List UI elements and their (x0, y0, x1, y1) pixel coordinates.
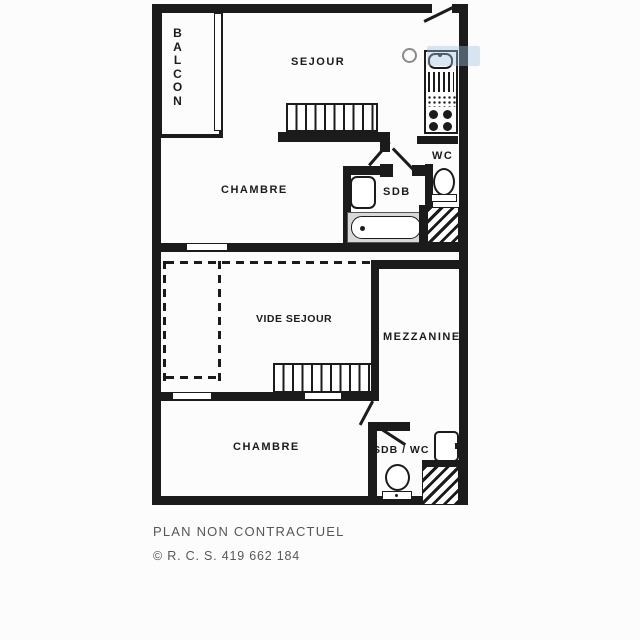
hob-burner-2 (443, 110, 452, 119)
toilet-lower-bowl (385, 464, 410, 491)
window-lower-2 (304, 392, 342, 400)
sdbwc-left-wall (368, 422, 377, 505)
room-label-chambre-upper: CHAMBRE (221, 184, 288, 196)
void-dashed-left (163, 261, 166, 381)
void-dashed-bottom (166, 376, 221, 379)
room-label-sejour: SEJOUR (291, 56, 345, 68)
mezzanine-top-wall (371, 260, 468, 269)
kitchen-drainboard (428, 72, 454, 92)
window-upper-bottom-wall (186, 243, 228, 251)
void-dashed-top (166, 261, 371, 264)
room-label-chambre-lower: CHAMBRE (233, 441, 300, 453)
room-label-balcon: BALCON (171, 27, 184, 108)
sdb-top-wall-blob (380, 164, 393, 177)
wc-divider-wall (425, 164, 433, 209)
balcony-sliding-window (214, 13, 222, 131)
duct-hatch-lower (422, 466, 459, 505)
staircase-lower (273, 363, 373, 393)
kitchen-stub-wall (417, 136, 458, 144)
wc-door-stub (412, 165, 425, 176)
room-label-sdb-wc: SDB / WC (373, 444, 429, 456)
duct-hatch-upper (427, 207, 459, 243)
outer-wall-bottom (152, 496, 468, 505)
washbasin-upper-tap (344, 189, 351, 195)
outer-wall-right (459, 4, 468, 505)
washbasin-lower-tap (455, 443, 462, 449)
room-label-vide-sejour: VIDE SEJOUR (256, 313, 332, 325)
window-lower-1 (172, 392, 212, 400)
duct-hatch-upper-stub (419, 205, 427, 243)
hob-burner-4 (443, 122, 452, 131)
washbasin-upper (350, 176, 376, 209)
copyright-text: © R. C. S. 419 662 184 (153, 549, 300, 563)
room-label-wc: WC (432, 150, 453, 162)
kitchen-counter-texture (427, 95, 456, 107)
room-label-sdb: SDB (383, 186, 411, 198)
table-circle-symbol (402, 48, 417, 63)
disclaimer-text: PLAN NON CONTRACTUEL (153, 524, 345, 539)
floor-plan-canvas: BALCON SEJOUR CHAMBRE SDB WC VIDE SE (0, 0, 640, 640)
hob-burner-3 (429, 122, 438, 131)
outer-wall-top-right-stub (452, 4, 468, 13)
toilet-upper-base (431, 194, 457, 202)
room-label-mezzanine: MEZZANINE (383, 331, 461, 343)
hob-burner-1 (429, 110, 438, 119)
toilet-upper-bowl (433, 168, 455, 196)
bathtub-drain (360, 226, 365, 231)
void-dashed-mid (218, 261, 221, 381)
stair-wall-upper (278, 132, 389, 142)
staircase-upper (286, 103, 378, 132)
watermark-blue (427, 46, 480, 66)
toilet-lower-base-dot (395, 494, 398, 497)
